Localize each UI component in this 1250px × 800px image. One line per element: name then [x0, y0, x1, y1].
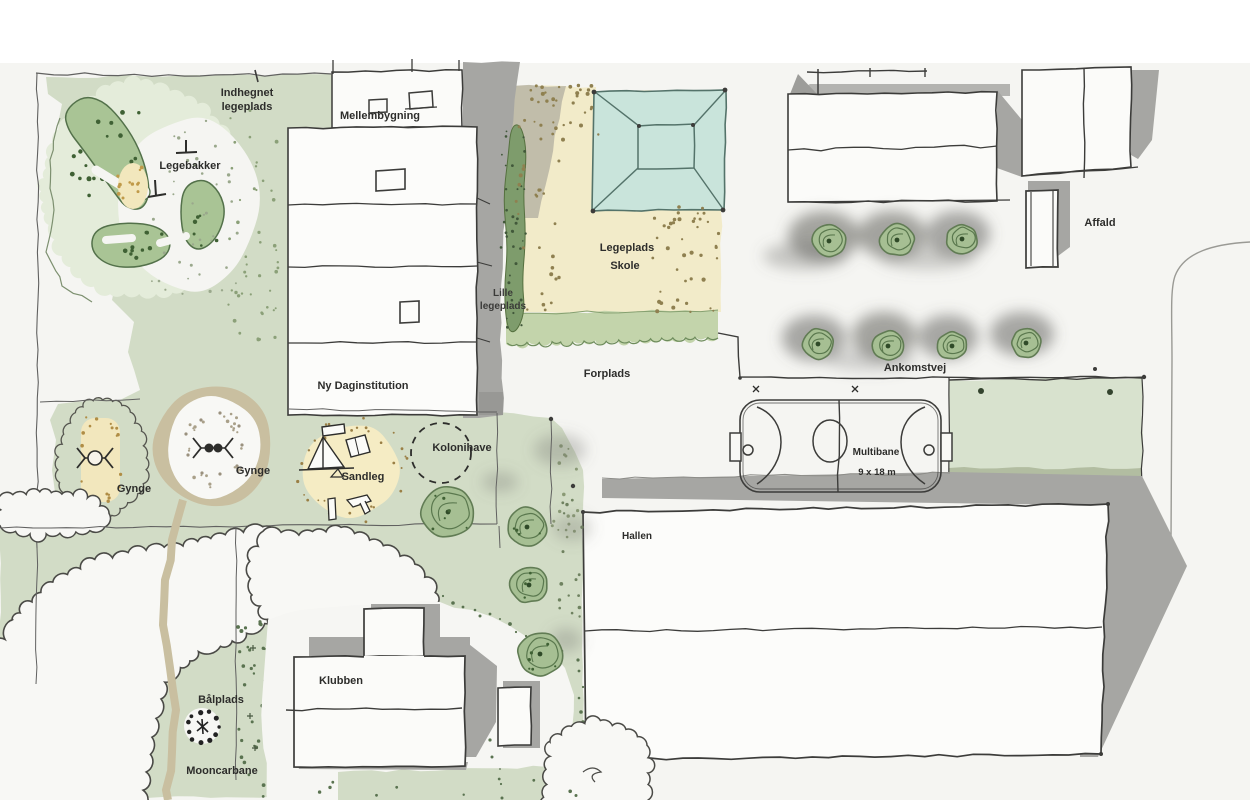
svg-text:Bålplads: Bålplads	[198, 694, 244, 706]
svg-text:Klubben: Klubben	[319, 675, 363, 687]
svg-text:Lille: Lille	[493, 288, 513, 299]
svg-text:Affald: Affald	[1084, 217, 1115, 229]
svg-text:Multibane: Multibane	[853, 447, 900, 458]
svg-text:Gynge: Gynge	[117, 483, 151, 495]
svg-text:9 x 18 m: 9 x 18 m	[858, 467, 896, 478]
svg-text:Ankomstvej: Ankomstvej	[884, 362, 946, 374]
svg-text:Sandleg: Sandleg	[342, 471, 385, 483]
svg-text:legeplads: legeplads	[480, 301, 527, 312]
svg-text:Forplads: Forplads	[584, 368, 630, 380]
svg-text:Mellembygning: Mellembygning	[340, 110, 420, 122]
svg-text:legeplads: legeplads	[222, 101, 273, 113]
svg-text:Indhegnet: Indhegnet	[221, 87, 274, 99]
svg-text:Ny Daginstitution: Ny Daginstitution	[317, 380, 408, 392]
svg-text:Skole: Skole	[610, 260, 639, 272]
svg-text:Kolonihave: Kolonihave	[432, 442, 491, 454]
svg-text:Hallen: Hallen	[622, 531, 652, 542]
svg-text:Gynge: Gynge	[236, 465, 270, 477]
svg-text:Legebakker: Legebakker	[159, 160, 221, 172]
svg-text:Legeplads: Legeplads	[600, 242, 654, 254]
svg-text:Mooncarbane: Mooncarbane	[186, 765, 258, 777]
